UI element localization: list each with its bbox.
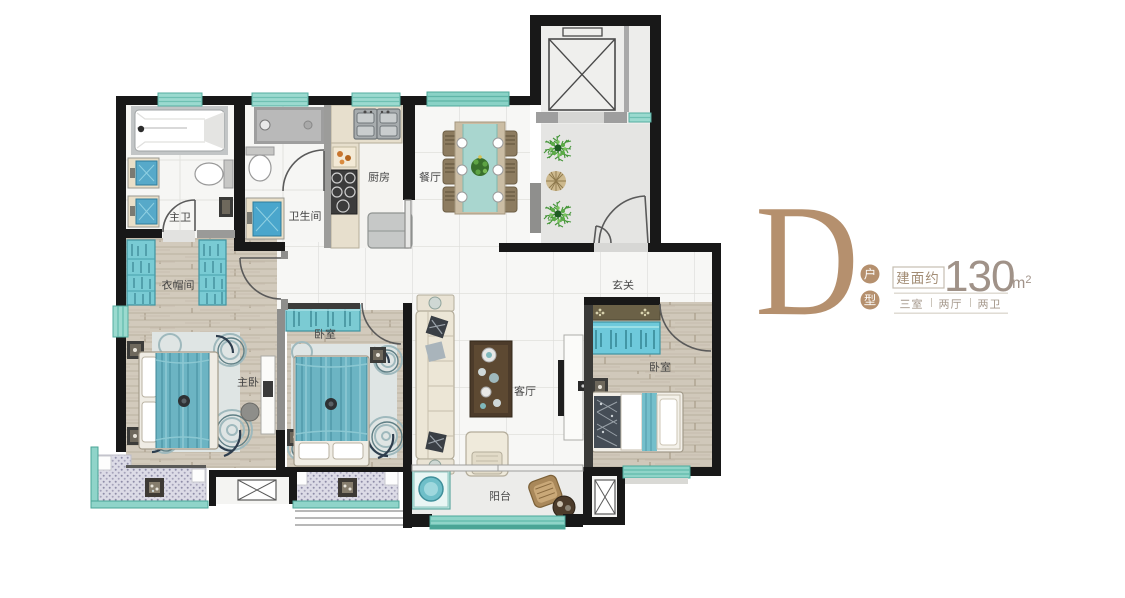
svg-text:D: D (755, 171, 859, 349)
svg-text:建面约: 建面约 (896, 271, 940, 286)
